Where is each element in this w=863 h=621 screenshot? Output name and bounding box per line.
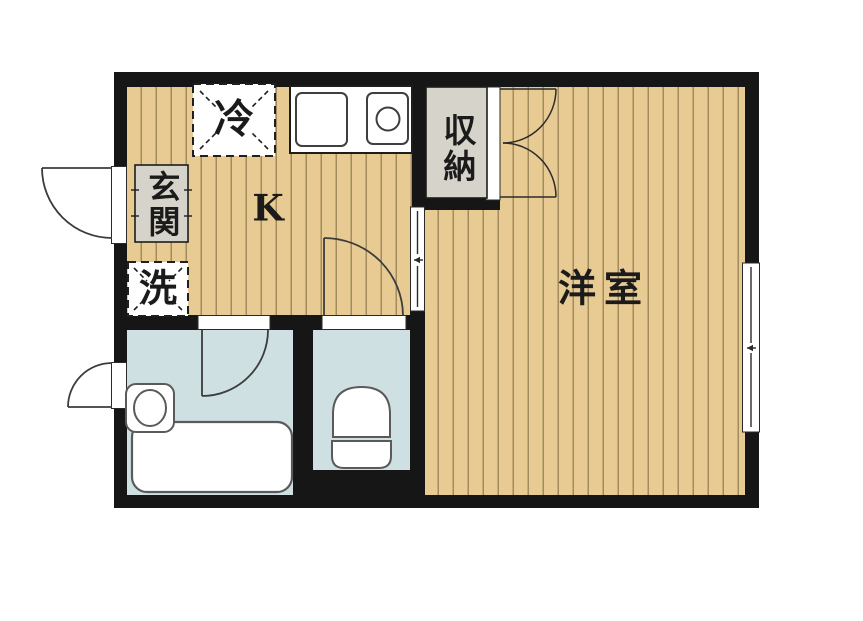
toilet-right-wall <box>410 310 425 475</box>
toilet-door-threshold <box>322 316 406 330</box>
toilet-fixture <box>332 387 391 468</box>
left-wall-upper <box>114 72 127 168</box>
washing-machine-label: 洗 <box>139 270 177 309</box>
closet-door-arc-top <box>503 89 556 143</box>
western-room-label: 洋室 <box>558 270 650 309</box>
closet-label: 収納 <box>440 113 474 185</box>
toilet-door-arc <box>324 238 403 316</box>
closet-left-wall <box>412 87 426 202</box>
floorplan: K 洋室 玄関 収納 洗 冷 <box>0 0 863 621</box>
doors <box>42 168 403 407</box>
bathroom-exterior-door-arc <box>68 363 112 407</box>
bathroom-right-wall <box>293 315 313 495</box>
bathroom-fixtures <box>126 384 292 492</box>
sliding-symbols <box>414 211 756 427</box>
bathroom-door-threshold <box>198 316 270 330</box>
closet-door-arc-bottom <box>503 143 556 197</box>
floorplan-linework <box>0 0 863 621</box>
toilet-bowl <box>333 387 390 437</box>
entrance-label: 玄関 <box>146 170 179 240</box>
closet-bifold-doors <box>500 89 556 197</box>
stove-burner <box>377 108 400 131</box>
bathroom-exterior-door-opening <box>112 363 127 409</box>
kitchen-bathroom-wall-left <box>114 315 198 330</box>
left-wall-middle <box>114 242 127 365</box>
right-wall-upper <box>745 72 759 265</box>
bathroom-door-arc <box>202 330 268 396</box>
toilet-tank <box>332 441 391 468</box>
bottom-wall <box>114 495 759 508</box>
entrance-door-opening <box>112 167 127 244</box>
closet-door-panel <box>486 87 500 200</box>
kitchen-fixtures <box>290 86 412 153</box>
wash-basin <box>134 390 166 426</box>
kitchen-label: K <box>252 191 283 228</box>
refrigerator-label: 冷 <box>214 100 254 141</box>
kitchen-sink <box>296 93 347 146</box>
entrance-door-arc <box>42 168 112 238</box>
